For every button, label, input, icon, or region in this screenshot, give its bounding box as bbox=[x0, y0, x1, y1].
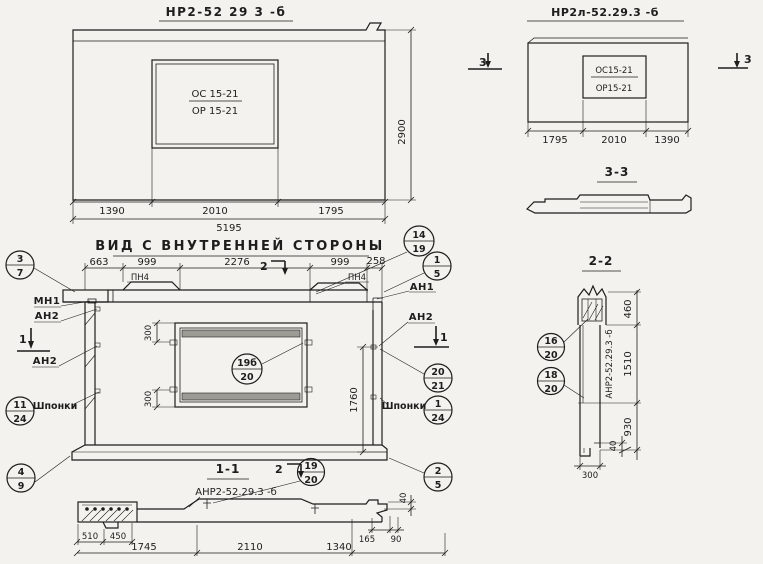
callout-20-21-leader bbox=[380, 349, 424, 374]
bottom-rib-detail bbox=[584, 443, 600, 453]
dim-1795: 1795 bbox=[542, 135, 567, 146]
rebar-dot bbox=[101, 507, 105, 511]
callout-3-7-sheet: 7 bbox=[17, 268, 24, 279]
dim-663: 663 bbox=[89, 257, 108, 268]
section1-mark-right: 1 bbox=[440, 331, 448, 344]
top-band-lines bbox=[63, 290, 382, 302]
section1-mark-left: 1 bbox=[19, 333, 27, 346]
dim-999-left: 999 bbox=[137, 257, 156, 268]
dim-999-right: 999 bbox=[330, 257, 349, 268]
inner-view: ВИД С ВНУТРЕННЕЙ СТОРОНЫ 663 999 2276 99… bbox=[6, 226, 452, 492]
callout-19b-20-sheet: 20 bbox=[240, 372, 254, 383]
top-left-end-block bbox=[63, 290, 108, 302]
opening-mark-top: ОС 15-21 bbox=[191, 89, 238, 100]
callout-1-5-sheet: 5 bbox=[434, 269, 441, 280]
dim-450: 450 bbox=[110, 532, 126, 542]
callout-4-9-leader bbox=[35, 456, 70, 482]
front-view-left-title: НР2л-52.29.3 -б bbox=[551, 6, 659, 19]
an2-right-leader bbox=[379, 322, 435, 346]
callout-19-20-num: 19 bbox=[304, 461, 317, 472]
callout-4-9-sheet: 9 bbox=[18, 481, 25, 492]
window-bottom-reveal bbox=[182, 393, 300, 400]
middle-rib-inner bbox=[578, 325, 602, 403]
callout-2-5-sheet: 5 bbox=[435, 480, 442, 491]
callout-14-19-num: 14 bbox=[412, 230, 426, 241]
keys-label-left: Шпонки bbox=[33, 401, 78, 412]
dim-total: 5195 bbox=[216, 223, 241, 234]
callout-11-24-num: 11 bbox=[13, 400, 26, 411]
window-hinge-left-lower bbox=[170, 387, 177, 392]
assembly-mark: АНР2-52.29.3 -б bbox=[195, 487, 276, 498]
callout-19-20-sheet: 20 bbox=[304, 475, 318, 486]
dim-1390: 1390 bbox=[99, 206, 124, 217]
section1-arrow-left bbox=[28, 341, 34, 349]
an1-leader bbox=[377, 291, 436, 299]
an1-label: АН1 bbox=[410, 282, 435, 293]
dim-2110: 2110 bbox=[237, 542, 262, 553]
callout-3-7-leader bbox=[34, 268, 75, 292]
dim-1760: 1760 bbox=[349, 387, 360, 412]
left-block-hatch bbox=[82, 505, 133, 521]
dim-300-bottom: 300 bbox=[144, 391, 154, 407]
dim-1795: 1795 bbox=[318, 206, 343, 217]
dim-2010: 2010 bbox=[601, 135, 626, 146]
section-3-3: 3-3 bbox=[527, 165, 691, 213]
pn4-right-leader bbox=[316, 282, 369, 294]
rebar-dot bbox=[85, 507, 89, 511]
keys-label-right: Шпонки bbox=[382, 401, 427, 412]
profile-inner-lines bbox=[580, 200, 650, 213]
callout-2-5-leader bbox=[389, 458, 424, 473]
left-block-step bbox=[103, 522, 118, 528]
pn4-label-right: ПН4 bbox=[348, 273, 366, 283]
dim-1340: 1340 bbox=[326, 542, 351, 553]
dim-40: 40 bbox=[609, 441, 619, 452]
callout-19b-20-leader bbox=[262, 343, 303, 364]
panel-top-strip-line bbox=[528, 38, 688, 43]
window-opening-inner bbox=[156, 64, 274, 144]
callout-18-20-sheet: 20 bbox=[544, 384, 558, 395]
section3-mark-left: 3 bbox=[479, 56, 487, 69]
window-hinge-left-upper bbox=[170, 340, 177, 345]
top-band-joints bbox=[113, 290, 367, 302]
height-dim-line bbox=[360, 344, 366, 455]
rebar-dot bbox=[117, 507, 121, 511]
assembly-mark-vertical: АНР2-52.29.3 -б bbox=[605, 329, 615, 398]
opening-mark-bottom: ОР15-21 bbox=[596, 84, 633, 94]
section1-arrow-right bbox=[433, 339, 439, 346]
dim-165: 165 bbox=[359, 535, 375, 545]
section2-mark-top: 2 bbox=[260, 260, 268, 273]
callout-19b-20-num: 19б bbox=[237, 358, 257, 369]
section-3-3-title: 3-3 bbox=[605, 165, 630, 179]
left-wall-anchor-upper bbox=[95, 307, 100, 311]
extension-lines bbox=[528, 100, 688, 137]
bottom-rib-lines bbox=[580, 403, 600, 456]
dim-930: 930 bbox=[623, 417, 634, 436]
an2-label-right: АН2 bbox=[409, 312, 434, 323]
window-opening-outer bbox=[152, 60, 278, 148]
top-anchor-detail bbox=[583, 299, 603, 321]
an2-label-left-top: АН2 bbox=[35, 311, 60, 322]
window-dim-lines bbox=[154, 320, 160, 410]
panel-outline bbox=[528, 43, 688, 122]
drawing-canvas: НР2-52 29 3 -б ОС 15-21 ОР 15-21 2900 13… bbox=[0, 0, 763, 564]
dim-40: 40 bbox=[399, 493, 409, 504]
callout-16-20-num: 16 bbox=[544, 336, 558, 347]
dim-510: 510 bbox=[82, 532, 98, 542]
section2-arrow-top bbox=[282, 268, 288, 275]
mn1-label: МН1 bbox=[34, 296, 61, 307]
window-hinge-right-upper bbox=[305, 340, 312, 345]
window-top-reveal bbox=[182, 330, 300, 337]
callout-18-20-leader bbox=[564, 385, 584, 398]
section-1-1: 1-1 2 АНР2-52.29.3 -б 19 20 510 450 1745… bbox=[74, 459, 448, 557]
extension-lines bbox=[73, 30, 416, 224]
callout-20-21-sheet: 21 bbox=[431, 381, 444, 392]
callout-3-7-num: 3 bbox=[17, 254, 24, 265]
bottom-band bbox=[72, 445, 387, 460]
rebar-dot bbox=[93, 507, 97, 511]
dim-1390: 1390 bbox=[654, 135, 679, 146]
dim-300: 300 bbox=[582, 471, 598, 481]
front-view-left: НР2л-52.29.3 -б 3 3 ОС15-21 ОР15-21 1795… bbox=[468, 6, 752, 146]
callout-18-20-num: 18 bbox=[544, 370, 558, 381]
rebar-dot bbox=[109, 507, 113, 511]
dim-300-top: 300 bbox=[144, 325, 154, 341]
dim-40-line bbox=[619, 436, 631, 457]
window-dim-extensions bbox=[152, 323, 175, 407]
section3-arrow-right bbox=[734, 61, 740, 68]
section2-mark: 2 bbox=[275, 463, 283, 476]
callout-1-5-num: 1 bbox=[434, 255, 441, 266]
dim-1745: 1745 bbox=[131, 542, 156, 553]
section-2-2-title: 2-2 bbox=[589, 254, 614, 268]
callout-4-9-num: 4 bbox=[18, 467, 25, 478]
callout-11-24-sheet: 24 bbox=[13, 414, 27, 425]
width-dim-line bbox=[574, 463, 606, 469]
opening-mark-bottom: ОР 15-21 bbox=[192, 106, 238, 117]
callout-1-24-sheet: 24 bbox=[431, 413, 445, 424]
dim-90: 90 bbox=[391, 535, 402, 545]
inner-view-title: ВИД С ВНУТРЕННЕЙ СТОРОНЫ bbox=[95, 238, 384, 254]
profile-outline bbox=[527, 195, 691, 213]
callout-1-24-num: 1 bbox=[435, 399, 442, 410]
drawing-sheet: НР2-52 29 3 -б ОС 15-21 ОР 15-21 2900 13… bbox=[0, 0, 763, 564]
rebar-dot bbox=[125, 507, 129, 511]
section-1-1-title: 1-1 bbox=[216, 462, 241, 476]
callout-20-21-num: 20 bbox=[431, 367, 445, 378]
profile-outline bbox=[137, 499, 387, 522]
dim-2010: 2010 bbox=[202, 206, 227, 217]
section3-mark-right: 3 bbox=[744, 53, 752, 66]
window-hinge-right-lower bbox=[305, 387, 312, 392]
an2-label-left-mid: АН2 bbox=[33, 356, 58, 367]
callout-16-20-sheet: 20 bbox=[544, 350, 558, 361]
callout-14-19-sheet: 19 bbox=[412, 244, 425, 255]
callout-16-20-leader bbox=[564, 319, 588, 342]
dim-1510: 1510 bbox=[623, 351, 634, 376]
section-2-2: 2-2 АНР2-52.29.3 -б 460 1510 930 40 300 … bbox=[538, 254, 642, 481]
opening-mark-top: ОС15-21 bbox=[595, 66, 632, 76]
front-view: НР2-52 29 3 -б ОС 15-21 ОР 15-21 2900 13… bbox=[70, 5, 416, 234]
dim-460: 460 bbox=[623, 299, 634, 318]
dim-row-end bbox=[368, 527, 404, 533]
dim-2276: 2276 bbox=[224, 257, 249, 268]
callout-2-5-num: 2 bbox=[435, 466, 442, 477]
dim-height: 2900 bbox=[397, 119, 408, 144]
front-view-title: НР2-52 29 3 -б bbox=[166, 5, 287, 19]
